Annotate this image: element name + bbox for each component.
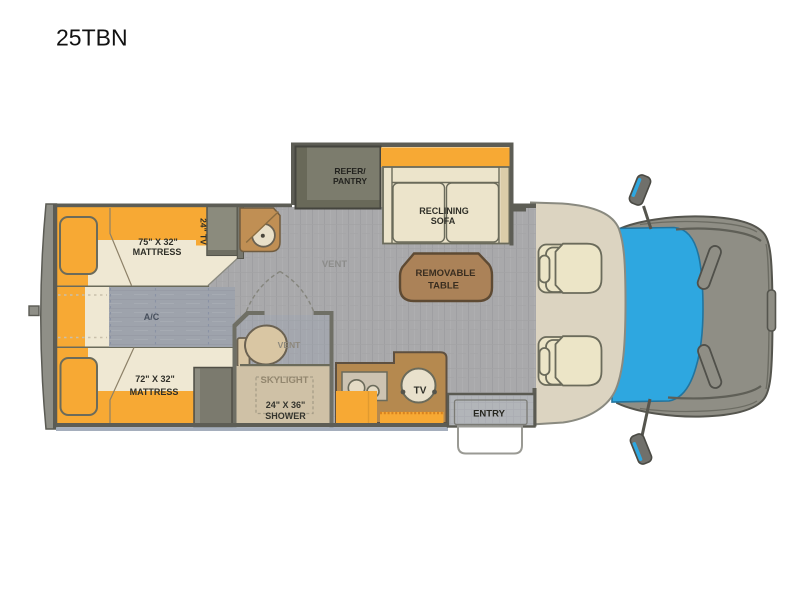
- svg-text:VENT: VENT: [278, 340, 301, 350]
- svg-text:REMOVABLE: REMOVABLE: [416, 268, 476, 279]
- svg-text:SKYLIGHT: SKYLIGHT: [260, 375, 308, 386]
- svg-text:MATTRESS: MATTRESS: [133, 247, 182, 257]
- svg-text:24" X 36": 24" X 36": [266, 400, 306, 410]
- svg-text:75" X 32": 75" X 32": [138, 237, 178, 247]
- svg-text:TABLE: TABLE: [428, 281, 459, 292]
- svg-text:ENTRY: ENTRY: [473, 409, 506, 420]
- svg-text:TV: TV: [414, 386, 427, 397]
- svg-text:RECLINING: RECLINING: [419, 206, 469, 216]
- svg-text:MATTRESS: MATTRESS: [130, 387, 179, 397]
- svg-text:25TBN: 25TBN: [56, 25, 128, 51]
- svg-text:A/C: A/C: [144, 312, 160, 322]
- svg-text:PANTRY: PANTRY: [333, 176, 367, 186]
- svg-text:SHOWER: SHOWER: [265, 411, 306, 421]
- svg-text:72" X 32": 72" X 32": [135, 374, 175, 384]
- svg-text:REFER/: REFER/: [334, 166, 366, 176]
- svg-text:SOFA: SOFA: [431, 216, 456, 226]
- svg-text:VENT: VENT: [322, 259, 348, 270]
